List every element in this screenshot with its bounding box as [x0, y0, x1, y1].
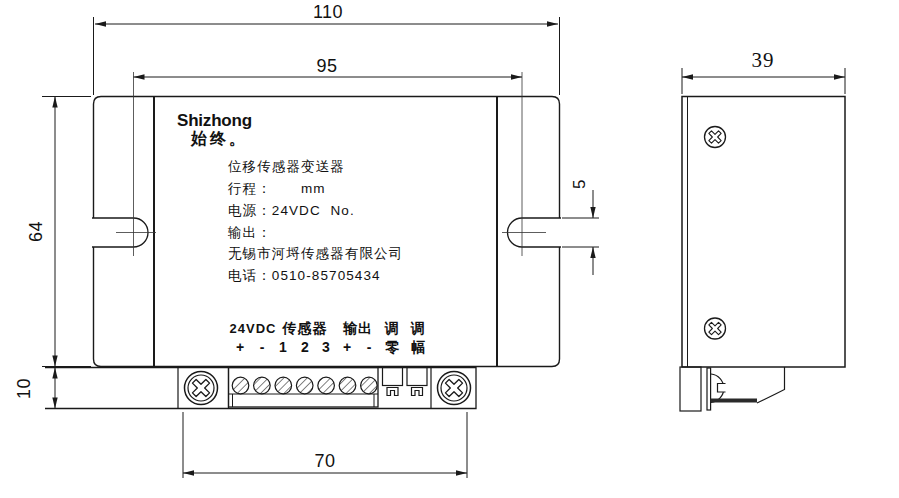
terminal-pin-span: 幅: [411, 340, 425, 355]
terminal-group-span-adj: 调: [411, 321, 426, 336]
terminal-group-zero-adj: 调: [385, 321, 400, 336]
label-output: 输出：: [228, 226, 272, 240]
side-bottom-assembly: [680, 367, 785, 411]
brand-logo-chinese: 始终。: [191, 131, 248, 148]
dimension-64: [42, 97, 91, 367]
brand-logo-latin: Shizhong: [177, 112, 252, 130]
terminal-group-output: 输出: [343, 321, 373, 336]
terminal-pin-minus2: -: [367, 340, 372, 355]
side-screw-bottom: [705, 318, 726, 339]
drawing-linework: [0, 0, 899, 498]
dim-label-70: 70: [303, 452, 347, 471]
dimension-5: [562, 190, 599, 275]
technical-drawing-displacement-transmitter: 110 95 64 10 70 5 39 Shizhong 始终。 位移传感器变…: [0, 0, 899, 498]
dim-label-39: 39: [740, 49, 786, 71]
label-phone: 电话：0510-85705434: [228, 269, 381, 283]
terminal-group-sensor: 传感器: [283, 321, 328, 336]
terminal-pin-2: 2: [301, 340, 309, 355]
side-body-outline: [682, 97, 845, 368]
dim-label-95: 95: [305, 57, 349, 76]
terminal-pin-3: 3: [322, 340, 330, 355]
panel-screw-left: [185, 372, 218, 405]
label-power-supply: 电源：24VDC No.: [228, 204, 355, 218]
terminal-screws: [232, 377, 377, 394]
side-view: [680, 68, 845, 411]
side-screw-top: [705, 127, 726, 148]
dim-label-110: 110: [302, 3, 354, 22]
label-product-name: 位移传感器变送器: [228, 160, 345, 174]
span-trimmer: [407, 368, 427, 396]
dim-label-10: 10: [15, 369, 34, 407]
dim-label-64: 64: [27, 212, 46, 250]
terminal-pin-1: 1: [279, 340, 287, 355]
terminal-group-24vdc: 24VDC: [230, 322, 277, 336]
terminal-pin-plus1: +: [236, 340, 244, 355]
terminal-pin-minus1: -: [260, 340, 265, 355]
label-travel-range: 行程： mm: [228, 182, 326, 196]
dim-label-5: 5: [571, 169, 589, 199]
panel-screw-right: [438, 372, 471, 405]
terminal-pin-plus2: +: [343, 340, 351, 355]
label-company: 无锡市河埒传感器有限公司: [228, 247, 403, 261]
dimension-10: [52, 368, 57, 409]
terminal-pin-zero: 零: [385, 340, 399, 355]
zero-trimmer: [383, 368, 403, 396]
